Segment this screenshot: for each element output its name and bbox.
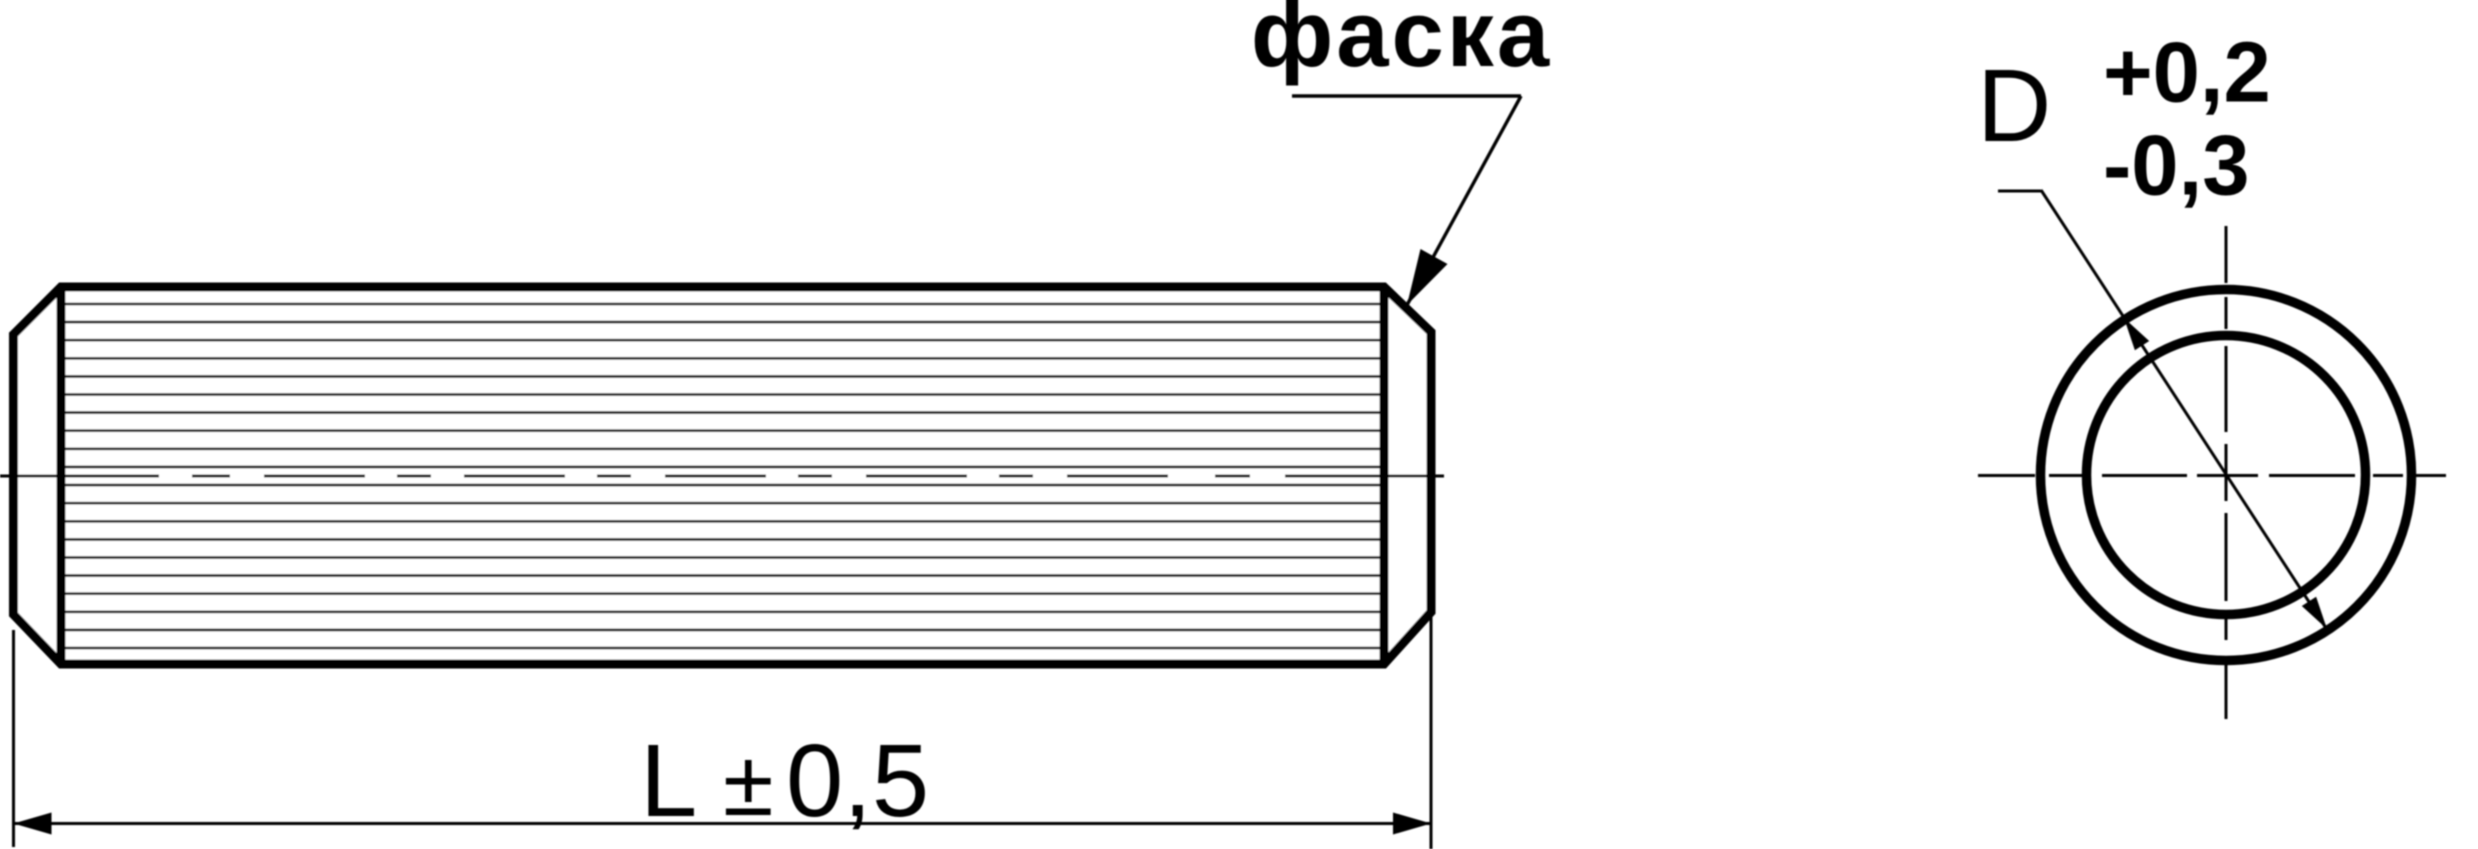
svg-text:L: L	[640, 723, 697, 838]
svg-text:D: D	[1977, 48, 2051, 163]
svg-text:фаска: фаска	[1251, 0, 1552, 86]
svg-text:±: ±	[723, 733, 774, 835]
svg-text:0,5: 0,5	[786, 723, 929, 838]
svg-text:-0,3: -0,3	[2103, 119, 2249, 214]
svg-text:+0,2: +0,2	[2103, 26, 2271, 121]
